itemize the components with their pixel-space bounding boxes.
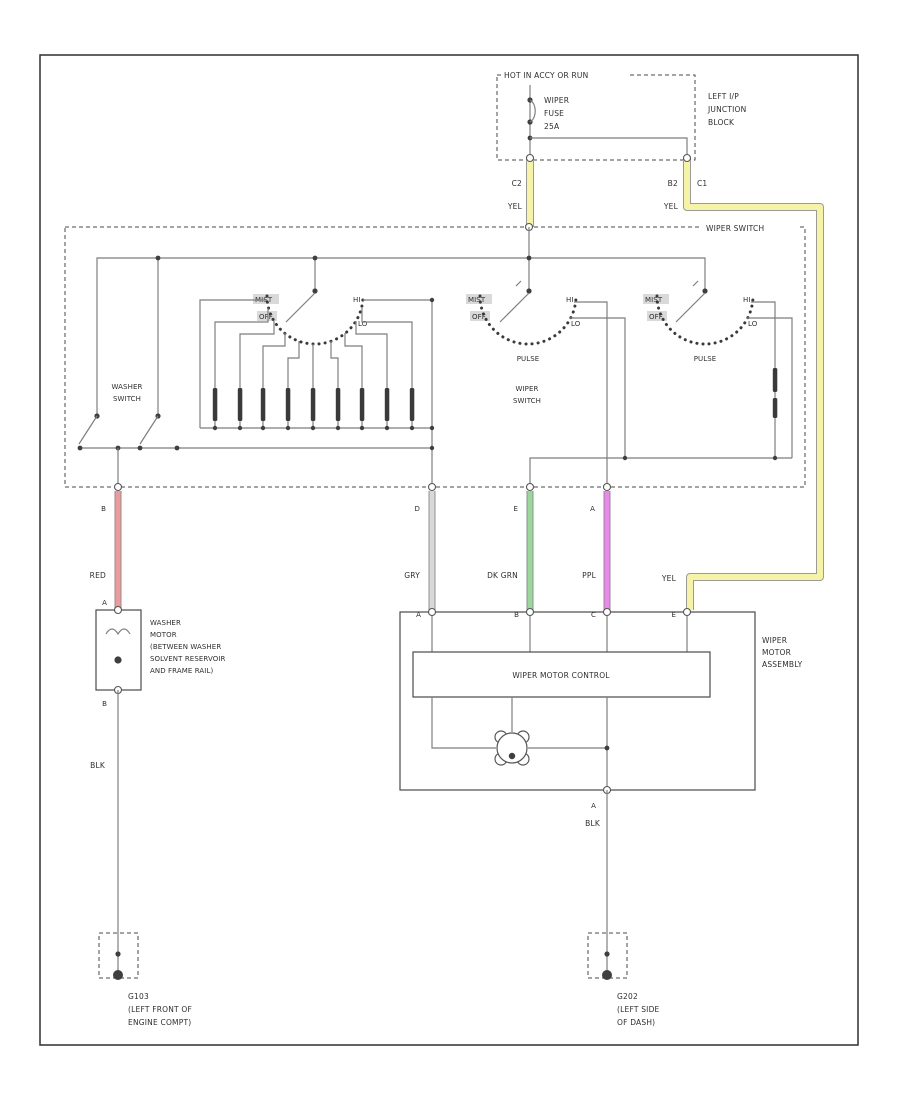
svg-text:PULSE: PULSE <box>694 355 717 363</box>
svg-text:LO: LO <box>748 320 758 328</box>
gry-color: GRY <box>404 571 420 580</box>
ground-terminal <box>113 970 123 980</box>
fuse-element <box>530 100 535 122</box>
fuse-name: WIPER <box>544 96 569 105</box>
svg-text:JUNCTION: JUNCTION <box>707 105 746 114</box>
motor-dot <box>114 656 121 663</box>
svg-text:(LEFT SIDE: (LEFT SIDE <box>617 1005 660 1014</box>
pulse-wiper-switch: MIST OFF HI LO PULSE WIPER SWITCH <box>466 288 625 487</box>
fuse-block-header: HOT IN ACCY OR RUN <box>504 71 588 80</box>
svg-text:FUSE: FUSE <box>544 109 564 118</box>
assembly-bottom-pin: A <box>591 802 596 810</box>
svg-text:SOLVENT RESERVOIR: SOLVENT RESERVOIR <box>150 655 226 663</box>
washer-blk-wire: BLK <box>90 761 106 770</box>
svg-text:LO: LO <box>571 320 581 328</box>
washer-switch-label: WASHER <box>112 383 143 391</box>
rotary-pointer <box>500 293 529 322</box>
ground-right-name: G202 <box>617 992 638 1001</box>
wiper-washer-wiring-diagram: HOT IN ACCY OR RUN WIPER FUSE 25A LEFT I… <box>0 0 900 1100</box>
svg-text:ASSEMBLY: ASSEMBLY <box>762 660 803 669</box>
speed-resistor <box>773 368 778 392</box>
assembly-pin-2: B <box>514 611 519 619</box>
yel-color: YEL <box>661 574 677 583</box>
ground-left: G103 (LEFT FRONT OF ENGINE COMPT) <box>99 933 192 1027</box>
wiring-diagram-page: HOT IN ACCY OR RUN WIPER FUSE 25A LEFT I… <box>0 0 900 1100</box>
junction-block-label: LEFT I/P <box>708 92 739 101</box>
washer-motor-label: WASHER <box>150 619 181 627</box>
wiper-blk-wire: BLK <box>585 819 601 828</box>
svg-text:SWITCH: SWITCH <box>513 397 541 405</box>
svg-text:(BETWEEN WASHER: (BETWEEN WASHER <box>150 643 221 651</box>
svg-text:MOTOR: MOTOR <box>150 631 177 639</box>
assembly-pin-1: A <box>416 611 421 619</box>
svg-text:MIST: MIST <box>468 296 486 304</box>
red-color: RED <box>90 571 106 580</box>
svg-text:HI: HI <box>566 296 574 304</box>
svg-text:HI: HI <box>743 296 751 304</box>
ground-terminal <box>602 970 612 980</box>
dkgrn-color: DK GRN <box>487 571 518 580</box>
ground-right: G202 (LEFT SIDE OF DASH) <box>588 933 660 1027</box>
pulse-label: PULSE <box>517 355 540 363</box>
svg-text:MOTOR: MOTOR <box>762 648 791 657</box>
ppl-pin: A <box>590 505 595 513</box>
svg-text:OFF: OFF <box>649 313 663 321</box>
output-wire-labels: B D E A RED GRY DK GRN PPL YEL <box>90 505 677 583</box>
svg-text:BLOCK: BLOCK <box>708 118 735 127</box>
wiper-motor-symbol <box>495 731 529 765</box>
wiper-switch-box: WIPER SWITCH WASHER SWITCH <box>65 223 805 491</box>
motor-brush-symbol <box>106 629 130 634</box>
fuse-block: HOT IN ACCY OR RUN WIPER FUSE 25A LEFT I… <box>497 70 746 211</box>
assembly-pin-3: C <box>591 611 596 619</box>
rotary-pointer <box>286 293 315 322</box>
wiper-switch-box-label: WIPER SWITCH <box>706 224 764 233</box>
washer-motor: A B WASHER MOTOR (BETWEEN WASHER SOLVENT… <box>90 599 225 975</box>
washer-switch-blade <box>79 416 97 444</box>
assembly-pin-4: E <box>671 611 676 619</box>
speed-resistor <box>773 398 778 418</box>
washer-motor-pin-b: B <box>102 700 107 708</box>
washer-switch: WASHER SWITCH <box>78 380 432 487</box>
gry-pin: D <box>415 505 421 513</box>
wiper-motor-assembly: A B C E WIPER MOTOR CONTROL WIPER MOTOR … <box>400 609 803 976</box>
dkgrn-pin: E <box>513 505 518 513</box>
delay-wafer: MIST OFF HI LO <box>200 288 434 487</box>
svg-text:OFF: OFF <box>472 313 486 321</box>
b2-wire-color: YEL <box>663 202 679 211</box>
rotary-contact-arc <box>657 296 753 344</box>
rotary-contact-arc <box>267 296 363 344</box>
washer-motor-pin-a: A <box>102 599 107 607</box>
svg-text:OFF: OFF <box>259 313 273 321</box>
assembly-label: WIPER <box>762 636 787 645</box>
fuse-rating: 25A <box>544 122 560 131</box>
connector-c2: C2 <box>512 179 522 188</box>
rotary-contact-arc <box>480 296 576 344</box>
connector-c1: C1 <box>697 179 707 188</box>
svg-text:AND FRAME RAIL): AND FRAME RAIL) <box>150 667 213 675</box>
wiper-motor-control-label: WIPER MOTOR CONTROL <box>512 671 610 680</box>
svg-text:(LEFT FRONT OF: (LEFT FRONT OF <box>128 1005 192 1014</box>
svg-text:ENGINE COMPT): ENGINE COMPT) <box>128 1018 191 1027</box>
svg-text:SWITCH: SWITCH <box>113 395 141 403</box>
svg-text:HI: HI <box>353 296 361 304</box>
c2-wire-color: YEL <box>507 202 523 211</box>
connector-b2: B2 <box>668 179 678 188</box>
ground-left-name: G103 <box>128 992 149 1001</box>
washer-switch-blade <box>140 416 158 444</box>
svg-text:MIST: MIST <box>645 296 663 304</box>
delay-resistors <box>213 388 414 421</box>
svg-text:OF DASH): OF DASH) <box>617 1018 655 1027</box>
svg-text:LO: LO <box>358 320 368 328</box>
wiper-switch-caption: WIPER <box>516 385 539 393</box>
ppl-color: PPL <box>582 571 596 580</box>
rotary-pointer <box>676 293 705 322</box>
red-pin: B <box>101 505 106 513</box>
